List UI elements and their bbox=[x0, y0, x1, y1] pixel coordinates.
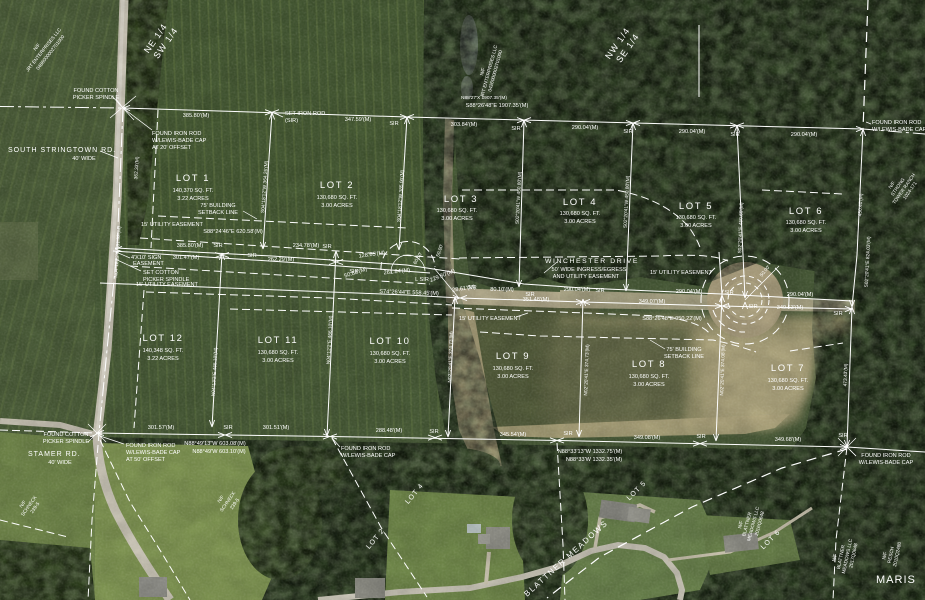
svg-text:450.40'(M): 450.40'(M) bbox=[857, 193, 864, 216]
svg-text:SIR: SIR bbox=[349, 269, 358, 275]
svg-text:15' UTILITY EASEMENT: 15' UTILITY EASEMENT bbox=[136, 282, 198, 288]
svg-text:130,680 SQ. FT.: 130,680 SQ. FT. bbox=[258, 350, 299, 356]
svg-text:LOT 4: LOT 4 bbox=[563, 197, 597, 208]
svg-text:SET COTTON: SET COTTON bbox=[143, 270, 179, 276]
svg-text:SIR: SIR bbox=[833, 311, 842, 317]
svg-text:290.04'(M): 290.04'(M) bbox=[787, 292, 814, 298]
svg-text:SIR: SIR bbox=[838, 433, 847, 439]
svg-text:N88°33'W 1332.35'(M): N88°33'W 1332.35'(M) bbox=[566, 457, 622, 463]
svg-text:SET IRON ROD: SET IRON ROD bbox=[285, 111, 325, 117]
svg-text:290.04'(M): 290.04'(M) bbox=[676, 289, 703, 295]
svg-text:EASEMENT: EASEMENT bbox=[133, 261, 164, 267]
svg-text:3.00 ACRES: 3.00 ACRES bbox=[633, 382, 665, 388]
svg-text:SIR: SIR bbox=[748, 304, 757, 310]
svg-text:S88°26'48"E 1907.35'(M): S88°26'48"E 1907.35'(M) bbox=[466, 103, 529, 109]
svg-text:473.43'(M): 473.43'(M) bbox=[843, 363, 850, 386]
svg-text:LOT 2: LOT 2 bbox=[320, 180, 354, 191]
svg-text:3.00 ACRES: 3.00 ACRES bbox=[441, 216, 473, 222]
svg-text:SIR: SIR bbox=[223, 425, 232, 431]
svg-text:SIR: SIR bbox=[247, 253, 256, 259]
svg-text:AND UTILITY EASEMENT: AND UTILITY EASEMENT bbox=[553, 274, 620, 280]
svg-text:LOT 7: LOT 7 bbox=[771, 363, 805, 374]
svg-text:349.07'(M): 349.07'(M) bbox=[639, 299, 666, 305]
svg-text:40' WIDE: 40' WIDE bbox=[72, 156, 96, 162]
svg-text:PICKER SPINDLE: PICKER SPINDLE bbox=[73, 95, 120, 101]
svg-text:3.00 ACRES: 3.00 ACRES bbox=[374, 359, 406, 365]
svg-text:SIR: SIR bbox=[595, 288, 604, 294]
svg-text:SETBACK LINE: SETBACK LINE bbox=[198, 210, 238, 216]
svg-text:LOT 6: LOT 6 bbox=[789, 206, 823, 217]
svg-text:W/LEWIS-BADE CAP: W/LEWIS-BADE CAP bbox=[872, 127, 925, 133]
svg-text:290.04'(M): 290.04'(M) bbox=[791, 132, 818, 138]
svg-text:140,348 SQ. FT.: 140,348 SQ. FT. bbox=[143, 348, 184, 354]
svg-text:(SIR): (SIR) bbox=[285, 118, 298, 124]
svg-text:LOT 5: LOT 5 bbox=[679, 201, 713, 212]
svg-text:290.04'(M): 290.04'(M) bbox=[572, 125, 599, 131]
svg-text:262.29'(M): 262.29'(M) bbox=[268, 257, 295, 263]
svg-text:FOUND IRON ROD: FOUND IRON ROD bbox=[341, 446, 390, 452]
svg-text:40' WIDE: 40' WIDE bbox=[48, 460, 72, 466]
svg-text:349.68'(M): 349.68'(M) bbox=[775, 437, 802, 443]
svg-text:LOT 11: LOT 11 bbox=[258, 335, 298, 346]
svg-text:LOT 3: LOT 3 bbox=[444, 194, 478, 205]
svg-text:W/LEWIS-BADE CAP: W/LEWIS-BADE CAP bbox=[126, 450, 181, 456]
svg-text:MARIS: MARIS bbox=[876, 574, 916, 586]
svg-text:301.47'(M): 301.47'(M) bbox=[173, 255, 200, 261]
svg-text:FOUND COTTON: FOUND COTTON bbox=[74, 88, 119, 94]
svg-text:LOT 10: LOT 10 bbox=[369, 336, 410, 347]
svg-text:50' WIDE INGRESS/EGRESS: 50' WIDE INGRESS/EGRESS bbox=[551, 267, 626, 273]
svg-text:130,680 SQ. FT.: 130,680 SQ. FT. bbox=[629, 374, 670, 380]
svg-text:LOT 12: LOT 12 bbox=[142, 333, 183, 344]
svg-text:3.00 ACRES: 3.00 ACRES bbox=[497, 374, 529, 380]
svg-text:349.08'(M): 349.08'(M) bbox=[634, 435, 661, 441]
svg-text:SIR: SIR bbox=[429, 429, 438, 435]
svg-text:3.00 ACRES: 3.00 ACRES bbox=[680, 223, 712, 229]
svg-text:STAMER RD.: STAMER RD. bbox=[28, 451, 81, 458]
svg-text:N88°33'13"W 1332.75'(M): N88°33'13"W 1332.75'(M) bbox=[558, 449, 623, 455]
svg-text:SIR: SIR bbox=[730, 132, 739, 138]
svg-text:80.10'(M): 80.10'(M) bbox=[490, 287, 514, 293]
svg-text:301.57'(M): 301.57'(M) bbox=[148, 425, 175, 431]
svg-text:W/LEWIS-BADE CAP: W/LEWIS-BADE CAP bbox=[152, 138, 207, 144]
svg-text:FOUND IRON ROD: FOUND IRON ROD bbox=[872, 120, 921, 126]
svg-text:LOT 9: LOT 9 bbox=[496, 351, 530, 362]
svg-text:S88°26'48"E 950.22'(M): S88°26'48"E 950.22'(M) bbox=[642, 316, 702, 322]
svg-text:S88°24'46"E 620.58'(M): S88°24'46"E 620.58'(M) bbox=[203, 229, 263, 235]
svg-text:3.22 ACRES: 3.22 ACRES bbox=[147, 356, 179, 362]
svg-text:FOUND IRON ROD: FOUND IRON ROD bbox=[126, 443, 175, 449]
svg-text:303.84'(M): 303.84'(M) bbox=[451, 122, 478, 128]
svg-text:3.00 ACRES: 3.00 ACRES bbox=[772, 386, 804, 392]
svg-text:N88°49'W 603.10'(M): N88°49'W 603.10'(M) bbox=[192, 449, 245, 455]
svg-text:349.63'(M): 349.63'(M) bbox=[777, 305, 804, 311]
svg-text:75' BUILDING: 75' BUILDING bbox=[666, 347, 701, 353]
svg-text:234.78'(M): 234.78'(M) bbox=[293, 243, 320, 249]
svg-text:AT 50' OFFSET: AT 50' OFFSET bbox=[126, 457, 166, 463]
svg-text:130,680 SQ. FT.: 130,680 SQ. FT. bbox=[560, 211, 601, 217]
svg-text:FOUND IRON ROD: FOUND IRON ROD bbox=[152, 131, 201, 137]
svg-text:SOUTH STRINGTOWN RD.: SOUTH STRINGTOWN RD. bbox=[8, 147, 116, 154]
svg-text:130,680 SQ. FT.: 130,680 SQ. FT. bbox=[493, 366, 534, 372]
svg-text:LOT 1: LOT 1 bbox=[176, 173, 210, 184]
svg-text:3.00 ACRES: 3.00 ACRES bbox=[321, 203, 353, 209]
svg-text:288.48'(M): 288.48'(M) bbox=[376, 428, 403, 434]
svg-text:SETBACK LINE: SETBACK LINE bbox=[664, 354, 704, 360]
svg-text:130,680 SQ. FT.: 130,680 SQ. FT. bbox=[317, 195, 358, 201]
svg-text:347.59'(M): 347.59'(M) bbox=[345, 117, 372, 123]
svg-text:SIR: SIR bbox=[623, 129, 632, 135]
svg-text:FOUND IRON ROD: FOUND IRON ROD bbox=[861, 453, 910, 459]
svg-text:385.80'(M): 385.80'(M) bbox=[183, 113, 210, 119]
svg-text:15' UTILITY EASEMENT: 15' UTILITY EASEMENT bbox=[650, 270, 712, 276]
svg-text:W/LEWIS-BADE CAP: W/LEWIS-BADE CAP bbox=[341, 453, 396, 459]
svg-text:130,680 SQ. FT.: 130,680 SQ. FT. bbox=[370, 351, 411, 357]
svg-text:FOUND COTTON: FOUND COTTON bbox=[44, 432, 89, 438]
svg-text:130,680 SQ. FT.: 130,680 SQ. FT. bbox=[437, 208, 478, 214]
svg-text:130,680 SQ. FT.: 130,680 SQ. FT. bbox=[768, 378, 809, 384]
svg-text:3.22 ACRES: 3.22 ACRES bbox=[177, 196, 209, 202]
svg-text:130,680 SQ. FT.: 130,680 SQ. FT. bbox=[786, 220, 827, 226]
svg-text:301.51'(M): 301.51'(M) bbox=[263, 425, 290, 431]
svg-text:290.04'(M): 290.04'(M) bbox=[564, 287, 591, 293]
svg-text:385.80'(M): 385.80'(M) bbox=[177, 243, 204, 249]
svg-text:WINCHESTER DRIVE: WINCHESTER DRIVE bbox=[545, 258, 639, 265]
svg-text:290.04'(M): 290.04'(M) bbox=[679, 129, 706, 135]
svg-text:SIR: SIR bbox=[724, 290, 733, 296]
svg-text:140,370 SQ. FT.: 140,370 SQ. FT. bbox=[173, 188, 214, 194]
svg-text:SIR: SIR bbox=[213, 243, 222, 249]
svg-text:AT 20' OFFSET: AT 20' OFFSET bbox=[152, 145, 192, 151]
svg-text:SIR: SIR bbox=[696, 434, 705, 440]
svg-text:130,680 SQ. FT.: 130,680 SQ. FT. bbox=[676, 215, 717, 221]
svg-text:345.54'(M): 345.54'(M) bbox=[500, 432, 527, 438]
svg-text:W/LEWIS-BADE CAP: W/LEWIS-BADE CAP bbox=[859, 460, 914, 466]
svg-text:351.48'(M): 351.48'(M) bbox=[523, 297, 550, 303]
svg-text:SIR: SIR bbox=[467, 285, 476, 291]
svg-text:SIR: SIR bbox=[563, 431, 572, 437]
svg-text:LOT 8: LOT 8 bbox=[632, 359, 666, 370]
svg-text:3.00 ACRES: 3.00 ACRES bbox=[564, 219, 596, 225]
svg-text:15' UTILITY EASEMENT: 15' UTILITY EASEMENT bbox=[141, 222, 203, 228]
svg-text:SIR: SIR bbox=[511, 126, 520, 132]
svg-text:PICKER SPINDLE: PICKER SPINDLE bbox=[43, 439, 90, 445]
svg-text:L SIR: L SIR bbox=[415, 277, 429, 283]
svg-text:N88°49'13"W 603.08'(M): N88°49'13"W 603.08'(M) bbox=[184, 441, 246, 447]
svg-text:3.00 ACRES: 3.00 ACRES bbox=[790, 228, 822, 234]
svg-text:3.00 ACRES: 3.00 ACRES bbox=[262, 358, 294, 364]
svg-text:SIR: SIR bbox=[322, 244, 331, 250]
svg-text:SIR: SIR bbox=[389, 121, 398, 127]
svg-text:75' BUILDING: 75' BUILDING bbox=[200, 203, 235, 209]
svg-text:15' UTILITY EASEMENT: 15' UTILITY EASEMENT bbox=[459, 316, 521, 322]
